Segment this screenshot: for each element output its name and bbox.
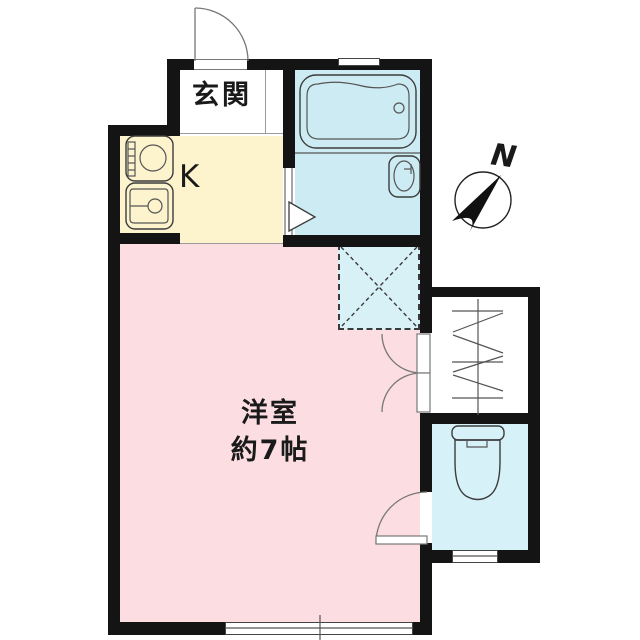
kitchen-label: K bbox=[179, 162, 199, 193]
bath-door-icon bbox=[283, 168, 315, 235]
genkan-label: 玄関 bbox=[192, 82, 252, 109]
compass-north-label: N bbox=[489, 140, 518, 173]
entry-door-icon bbox=[195, 8, 248, 61]
window-symbol bbox=[225, 556, 498, 640]
closet-shelf-icon bbox=[452, 299, 503, 415]
washing-machine-x-icon bbox=[341, 247, 417, 327]
bathtub-icon bbox=[300, 75, 416, 148]
room-name-label: 洋室 bbox=[185, 400, 355, 427]
compass-icon bbox=[452, 172, 511, 233]
floorplan: 玄関 K 洋室 約7帖 N bbox=[0, 0, 640, 640]
toilet-door-icon bbox=[376, 492, 427, 544]
room-size-label: 約7帖 bbox=[185, 437, 355, 464]
toilet-icon bbox=[452, 426, 504, 500]
closet-door-icon bbox=[382, 334, 430, 412]
washbasin-icon bbox=[389, 156, 420, 197]
fixtures-layer bbox=[0, 0, 640, 640]
stove-icon bbox=[126, 183, 173, 229]
kitchen-sink-icon bbox=[126, 136, 173, 181]
